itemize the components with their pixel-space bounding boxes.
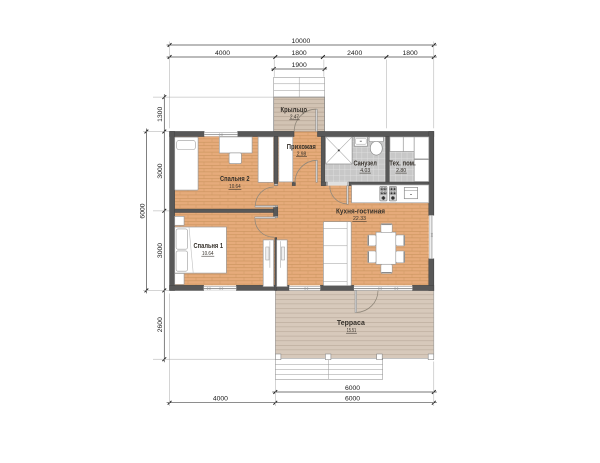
svg-text:1900: 1900 <box>292 62 307 69</box>
svg-text:6000: 6000 <box>139 203 146 218</box>
svg-text:2600: 2600 <box>157 317 164 332</box>
svg-text:3000: 3000 <box>157 243 164 258</box>
svg-text:3000: 3000 <box>157 163 164 178</box>
svg-text:Кухня-гостиная: Кухня-гостиная <box>336 208 385 215</box>
svg-text:Спальня 2: Спальня 2 <box>220 176 250 183</box>
svg-text:Прихожая: Прихожая <box>287 144 316 151</box>
svg-text:Крыльцо: Крыльцо <box>281 107 308 114</box>
svg-text:6000: 6000 <box>345 385 360 392</box>
svg-text:4000: 4000 <box>213 396 228 403</box>
svg-text:Спальня 1: Спальня 1 <box>194 243 224 250</box>
svg-text:6000: 6000 <box>345 396 360 403</box>
svg-text:2400: 2400 <box>347 50 362 57</box>
svg-text:Санузел: Санузел <box>353 161 377 168</box>
svg-text:4000: 4000 <box>215 50 230 57</box>
svg-text:1800: 1800 <box>292 50 307 57</box>
svg-text:1300: 1300 <box>157 107 164 122</box>
svg-text:10000: 10000 <box>291 38 310 45</box>
svg-text:Тех. пом.: Тех. пом. <box>389 161 416 168</box>
svg-text:Терраса: Терраса <box>337 320 365 327</box>
svg-text:1800: 1800 <box>403 50 418 57</box>
